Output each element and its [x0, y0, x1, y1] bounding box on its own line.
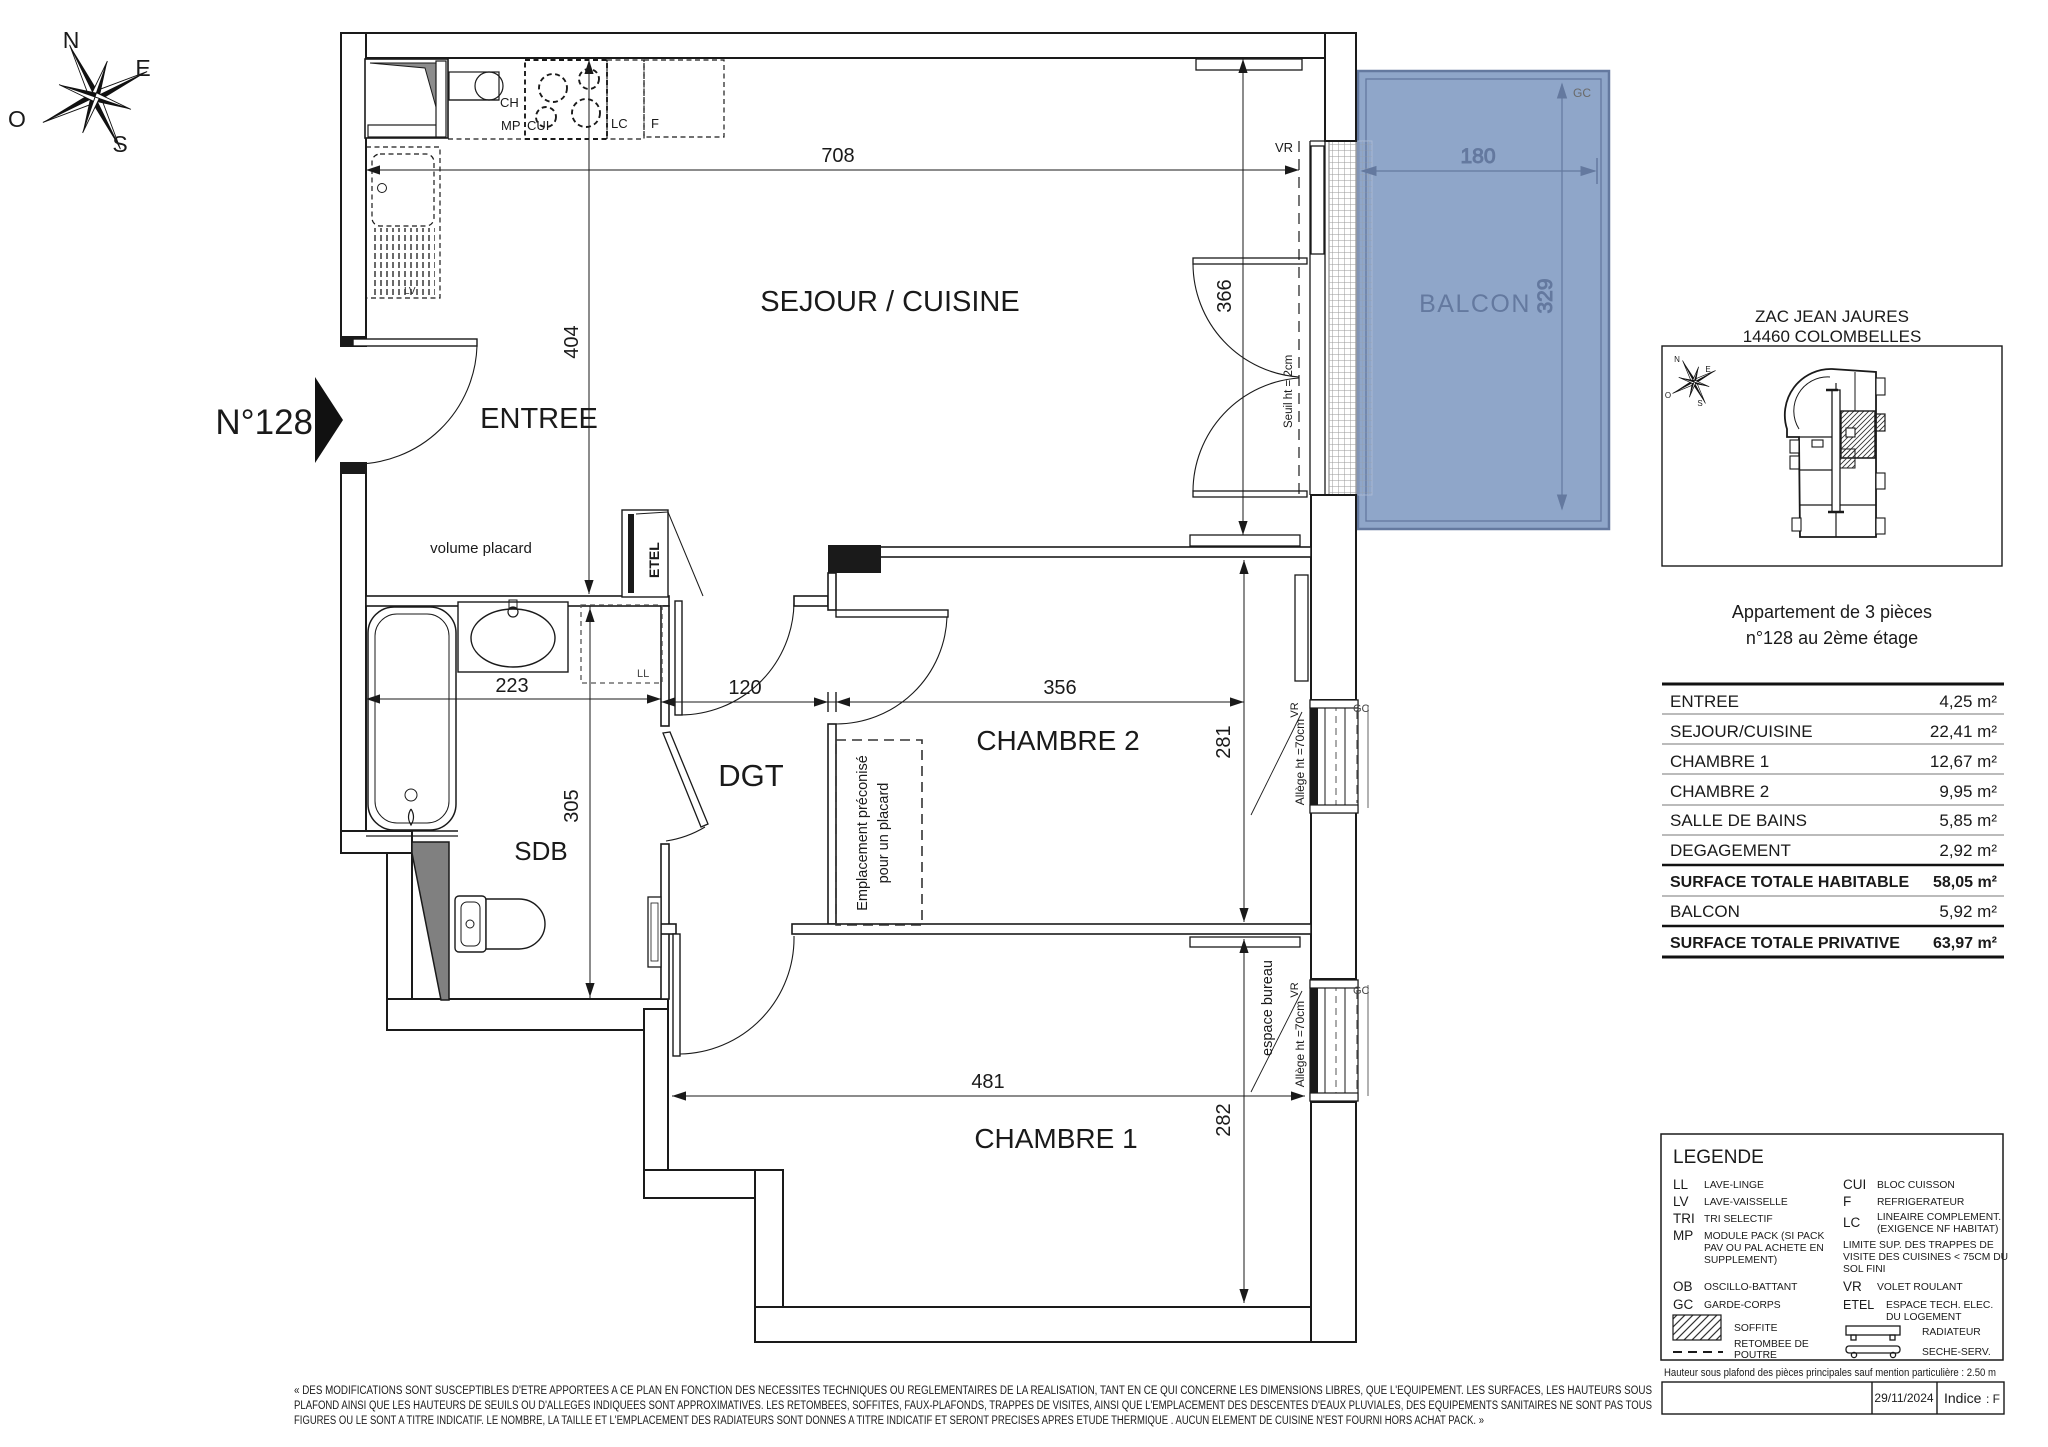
svg-text:ENTREE: ENTREE	[480, 403, 598, 435]
svg-text:SOFFITE: SOFFITE	[1734, 1323, 1778, 1334]
svg-text:O: O	[1665, 391, 1671, 400]
svg-text:RETOMBEE DE: RETOMBEE DE	[1734, 1339, 1809, 1350]
svg-text:VOLET ROULANT: VOLET ROULANT	[1877, 1282, 1963, 1293]
svg-text:404: 404	[561, 325, 583, 358]
svg-text:LC: LC	[1843, 1215, 1861, 1230]
svg-text:708: 708	[821, 145, 854, 167]
svg-text:PAV OU PAL ACHETE EN: PAV OU PAL ACHETE EN	[1704, 1243, 1824, 1254]
svg-text:5,92 m²: 5,92 m²	[1939, 902, 1997, 921]
svg-text:CHAMBRE 2: CHAMBRE 2	[1670, 782, 1769, 801]
svg-text:DEGAGEMENT: DEGAGEMENT	[1670, 841, 1791, 860]
svg-text:GARDE-CORPS: GARDE-CORPS	[1704, 1300, 1781, 1311]
svg-text:366: 366	[1214, 279, 1236, 312]
svg-text:SOL FINI: SOL FINI	[1843, 1264, 1886, 1275]
svg-text:2,92 m²: 2,92 m²	[1939, 841, 1997, 860]
svg-text:63,97 m²: 63,97 m²	[1933, 935, 1997, 952]
svg-text:LL: LL	[637, 668, 649, 680]
svg-text:VISITE DES CUISINES < 75CM DU: VISITE DES CUISINES < 75CM DU	[1843, 1252, 2008, 1263]
svg-text:LIMITE SUP. DES TRAPPES DE: LIMITE SUP. DES TRAPPES DE	[1843, 1240, 1994, 1251]
svg-text:5,85 m²: 5,85 m²	[1939, 811, 1997, 830]
svg-text:: F: : F	[1986, 1392, 2000, 1406]
svg-text:SUPPLEMENT): SUPPLEMENT)	[1704, 1255, 1777, 1266]
svg-text:GC: GC	[1673, 1297, 1694, 1312]
svg-text:356: 356	[1043, 677, 1076, 699]
svg-text:VR: VR	[1843, 1279, 1862, 1294]
svg-text:VR: VR	[1289, 702, 1301, 717]
svg-text:VR: VR	[1289, 982, 1301, 997]
svg-text:GC: GC	[1353, 985, 1370, 997]
svg-text:GC: GC	[1573, 86, 1591, 100]
svg-text:OB: OB	[1673, 1279, 1693, 1294]
svg-text:29/11/2024: 29/11/2024	[1874, 1391, 1933, 1405]
svg-text:SURFACE TOTALE HABITABLE: SURFACE TOTALE HABITABLE	[1670, 874, 1909, 891]
svg-text:OSCILLO-BATTANT: OSCILLO-BATTANT	[1704, 1282, 1798, 1293]
svg-text:CHAMBRE 1: CHAMBRE 1	[974, 1123, 1137, 1154]
svg-text:LINEAIRE COMPLEMENT.: LINEAIRE COMPLEMENT.	[1877, 1212, 2001, 1223]
svg-text:ZAC JEAN JAURES: ZAC JEAN JAURES	[1755, 307, 1909, 326]
svg-text:BALCON: BALCON	[1670, 902, 1740, 921]
svg-text:TRI SELECTIF: TRI SELECTIF	[1704, 1214, 1773, 1225]
svg-text:MODULE PACK (SI PACK: MODULE PACK (SI PACK	[1704, 1231, 1824, 1242]
svg-text:481: 481	[971, 1071, 1004, 1093]
svg-text:223: 223	[495, 675, 528, 697]
svg-text:Hauteur sous plafond des pièce: Hauteur sous plafond des pièces principa…	[1664, 1367, 1996, 1379]
svg-text:305: 305	[561, 789, 583, 822]
svg-text:SEJOUR / CUISINE: SEJOUR / CUISINE	[760, 286, 1019, 318]
svg-text:58,05 m²: 58,05 m²	[1933, 874, 1997, 891]
svg-text:« DES MODIFICATIONS SONT SUSCE: « DES MODIFICATIONS SONT SUSCEPTIBLES D'…	[294, 1385, 1652, 1397]
svg-text:VR: VR	[1275, 140, 1293, 155]
svg-text:4,25 m²: 4,25 m²	[1939, 692, 1997, 711]
svg-text:CUI: CUI	[527, 118, 549, 133]
svg-text:LV: LV	[404, 286, 416, 297]
svg-text:(EXIGENCE NF HABITAT): (EXIGENCE NF HABITAT)	[1877, 1224, 1998, 1235]
svg-text:CHAMBRE 2: CHAMBRE 2	[976, 725, 1139, 756]
svg-text:Indice: Indice	[1944, 1390, 1982, 1406]
svg-text:E: E	[1705, 365, 1710, 374]
svg-text:12,67 m²: 12,67 m²	[1930, 752, 1997, 771]
svg-text:ESPACE TECH. ELEC.: ESPACE TECH. ELEC.	[1886, 1300, 1993, 1311]
svg-text:MP: MP	[1673, 1228, 1693, 1243]
svg-text:F: F	[651, 116, 659, 131]
svg-text:LEGENDE: LEGENDE	[1673, 1147, 1764, 1168]
svg-text:GC: GC	[1353, 703, 1370, 715]
svg-text:RADIATEUR: RADIATEUR	[1922, 1327, 1981, 1338]
svg-text:Appartement de 3 pièces: Appartement de 3 pièces	[1732, 602, 1932, 622]
svg-text:espace bureau: espace bureau	[1260, 960, 1276, 1056]
svg-text:180: 180	[1460, 145, 1495, 168]
svg-text:Allège ht =70cm: Allège ht =70cm	[1293, 1001, 1307, 1087]
svg-text:PLAFOND AINSI QUE LES HAUTEURS: PLAFOND AINSI QUE LES HAUTEURS DE SEUILS…	[294, 1400, 1652, 1412]
svg-text:SECHE-SERV.: SECHE-SERV.	[1922, 1347, 1991, 1358]
svg-text:SDB: SDB	[514, 836, 567, 866]
svg-text:S: S	[1697, 399, 1702, 408]
svg-text:TRI: TRI	[1673, 1211, 1695, 1226]
svg-text:22,41 m²: 22,41 m²	[1930, 722, 1997, 741]
svg-text:BALCON: BALCON	[1419, 290, 1531, 318]
svg-text:SEJOUR/CUISINE: SEJOUR/CUISINE	[1670, 722, 1813, 741]
svg-text:F: F	[1843, 1194, 1851, 1209]
svg-text:pour un placard: pour un placard	[876, 783, 892, 884]
svg-text:S: S	[112, 131, 127, 157]
svg-text:DGT: DGT	[718, 758, 784, 793]
svg-text:BLOC CUISSON: BLOC CUISSON	[1877, 1180, 1955, 1191]
svg-text:LC: LC	[611, 116, 628, 131]
svg-text:N: N	[1674, 355, 1680, 364]
svg-text:LV: LV	[1673, 1194, 1689, 1209]
svg-text:ETEL: ETEL	[1843, 1298, 1874, 1312]
svg-text:CH: CH	[500, 95, 519, 110]
svg-text:LL: LL	[1673, 1177, 1689, 1192]
svg-text:Emplacement préconisé: Emplacement préconisé	[855, 755, 871, 911]
svg-text:POUTRE: POUTRE	[1734, 1350, 1777, 1361]
svg-text:282: 282	[1213, 1103, 1235, 1136]
svg-text:SALLE DE BAINS: SALLE DE BAINS	[1670, 811, 1807, 830]
svg-text:N°128: N°128	[215, 403, 313, 442]
svg-text:120: 120	[728, 677, 761, 699]
svg-text:9,95 m²: 9,95 m²	[1939, 782, 1997, 801]
svg-text:REFRIGERATEUR: REFRIGERATEUR	[1877, 1197, 1964, 1208]
svg-text:ENTREE: ENTREE	[1670, 692, 1739, 711]
svg-text:Seuil ht = 2cm: Seuil ht = 2cm	[1283, 355, 1295, 428]
svg-text:n°128 au 2ème étage: n°128 au 2ème étage	[1746, 628, 1918, 648]
svg-text:LAVE-VAISSELLE: LAVE-VAISSELLE	[1704, 1197, 1788, 1208]
svg-text:14460 COLOMBELLES: 14460 COLOMBELLES	[1743, 327, 1922, 346]
svg-text:E: E	[135, 55, 150, 81]
svg-text:CHAMBRE 1: CHAMBRE 1	[1670, 752, 1769, 771]
svg-text:O: O	[8, 106, 26, 132]
svg-text:DU LOGEMENT: DU LOGEMENT	[1886, 1312, 1962, 1323]
svg-text:CUI: CUI	[1843, 1177, 1866, 1192]
svg-text:281: 281	[1213, 725, 1235, 758]
svg-text:329: 329	[1534, 278, 1557, 313]
svg-text:ETEL: ETEL	[646, 542, 662, 578]
svg-text:LAVE-LINGE: LAVE-LINGE	[1704, 1180, 1764, 1191]
svg-text:MP: MP	[501, 118, 521, 133]
svg-text:Allège ht =70cm: Allège ht =70cm	[1293, 719, 1307, 805]
svg-text:volume placard: volume placard	[430, 540, 532, 557]
svg-text:FIGURES OU LE SONT A TITRE IND: FIGURES OU LE SONT A TITRE INDICATIF. LE…	[294, 1415, 1484, 1427]
svg-text:SURFACE TOTALE PRIVATIVE: SURFACE TOTALE PRIVATIVE	[1670, 935, 1900, 952]
svg-text:N: N	[63, 27, 80, 53]
